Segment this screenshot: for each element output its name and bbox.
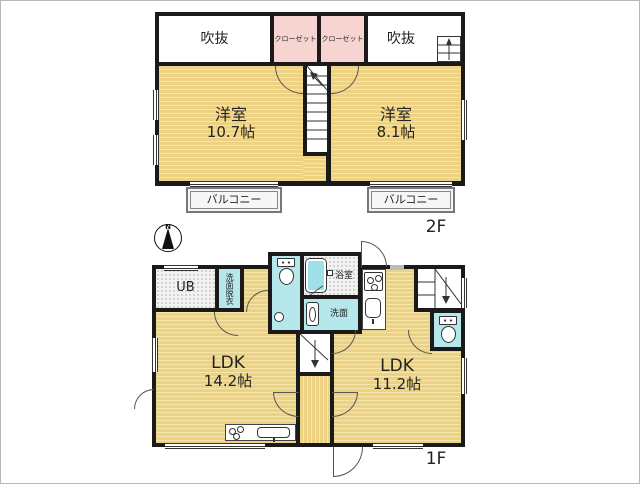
ldk-right-name: LDK: [380, 357, 414, 377]
stairwell-1f-right: [418, 269, 461, 308]
door-arc: [134, 389, 154, 409]
stairwell-2f: [307, 66, 327, 152]
kitchen-sink-icon: [365, 298, 381, 318]
bedroom-left-floor-patch: [303, 156, 326, 181]
room-closet-right: クローゼット: [321, 16, 364, 62]
window: [164, 265, 198, 271]
window: [165, 443, 265, 449]
stairs-icon-1f-right: [418, 269, 461, 308]
room-closet-left: クローゼット: [274, 16, 317, 62]
stairwell-1f-center: [300, 334, 330, 372]
toilet-icon: [277, 258, 295, 285]
door-arc: [333, 447, 363, 477]
ldk-right-area: 11.2帖: [373, 376, 421, 393]
void-right-label-box: 吹抜: [368, 16, 434, 62]
bedroom-right-area: 8.1帖: [377, 124, 416, 141]
stairs-icon-2f-top: [437, 36, 461, 62]
bath-label-box: 浴室: [330, 270, 358, 282]
kitchen-right: [362, 269, 386, 330]
bath-label: 浴室: [335, 271, 353, 281]
washstand-label: 洗面: [330, 309, 348, 319]
window: [461, 358, 467, 394]
void-right-label: 吹抜: [387, 31, 415, 47]
floor-label-1f: 1F: [410, 450, 462, 470]
window: [152, 338, 158, 372]
void-left-label: 吹抜: [201, 31, 229, 47]
room-bath-floor: 浴室: [304, 256, 358, 295]
compass-icon: N: [154, 224, 182, 252]
bathtub-icon: [305, 258, 327, 293]
balcony-right: バルコニー: [367, 187, 455, 213]
window: [153, 135, 159, 165]
tap-icon: [273, 438, 275, 442]
compass-needle: [162, 228, 174, 249]
kitchen-left: [225, 424, 296, 441]
room-toilet-1f-right: [430, 309, 465, 351]
balcony-left: バルコニー: [186, 187, 282, 213]
floor-plan-canvas: 吹抜 クローゼット クローゼット 吹抜 洋室 10.7帖: [0, 0, 640, 484]
ldk-left-area: 14.2帖: [204, 373, 252, 390]
stairs-icon-1f-center: [300, 334, 330, 372]
window: [461, 100, 467, 140]
room-ldk-right: LDK 11.2帖: [337, 353, 457, 397]
floor-label-2f: 2F: [410, 218, 462, 238]
toilet-icon: [439, 316, 457, 343]
stairs-icon-2f-center: [307, 66, 327, 152]
room-void-right: 吹抜: [368, 16, 461, 62]
balcony-right-label: バルコニー: [384, 194, 439, 207]
washbasin-icon: [306, 302, 319, 326]
room-toilet-1f-left: [272, 256, 300, 330]
ldk-left-name: LDK: [211, 354, 245, 374]
room-washstand: 洗面: [304, 299, 358, 330]
bedroom-right-name: 洋室: [380, 106, 412, 124]
bedroom-left-area: 10.7帖: [207, 124, 255, 141]
window: [461, 278, 467, 308]
balcony-left-label: バルコニー: [207, 194, 262, 207]
stove-icon: [364, 272, 383, 291]
sanitary-block: 浴室 洗面: [268, 252, 362, 334]
room-void-left: 吹抜: [159, 16, 270, 62]
tap-icon: [372, 319, 374, 324]
corner-sink-icon: [274, 312, 284, 322]
window: [373, 443, 423, 449]
unit-bath-label: UB: [176, 281, 194, 296]
room-dressing: 洗面脱衣: [215, 265, 244, 312]
closet-left-label: クローゼット: [275, 35, 317, 43]
entrance-door-arc: [361, 241, 387, 267]
washstand-label-box: 洗面: [322, 308, 356, 321]
window: [153, 90, 159, 120]
compass-north-label: N: [163, 223, 173, 231]
dressing-label: 洗面脱衣: [225, 273, 234, 305]
entrance-step: [390, 265, 404, 270]
room-unit-bath: UB: [152, 265, 219, 312]
bedroom-left-name: 洋室: [215, 106, 247, 124]
closet-right-label: クローゼット: [322, 35, 364, 43]
room-ldk-left: LDK 14.2帖: [168, 350, 288, 394]
corridor: [300, 376, 330, 443]
kitchen-sink-icon: [257, 427, 290, 438]
